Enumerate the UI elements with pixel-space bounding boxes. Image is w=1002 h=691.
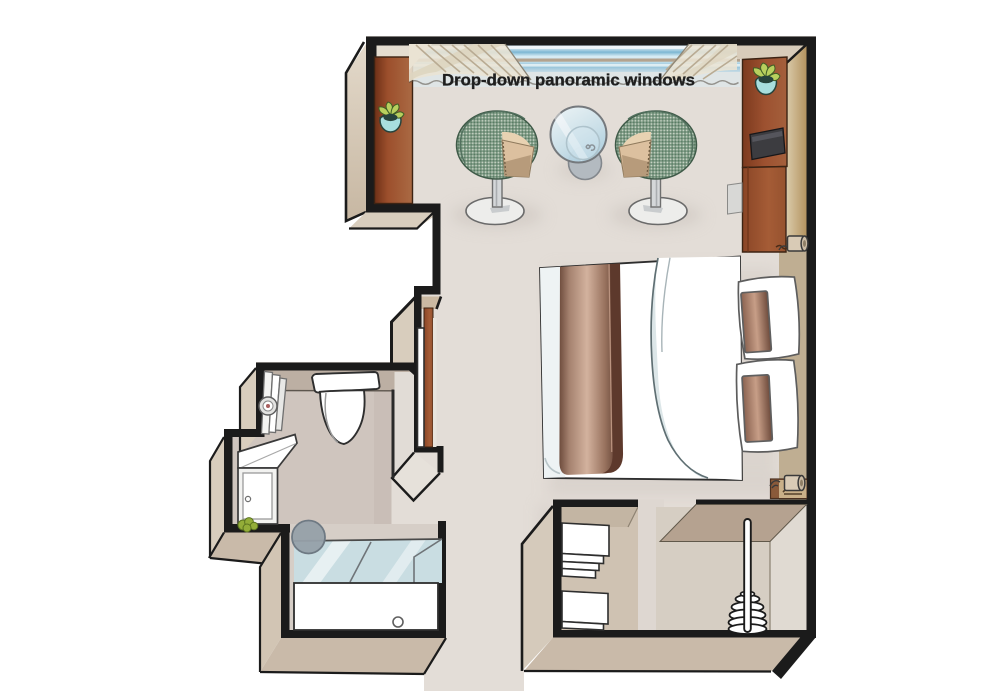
svg-text:Drop-down panoramic windows: Drop-down panoramic windows	[442, 71, 695, 90]
